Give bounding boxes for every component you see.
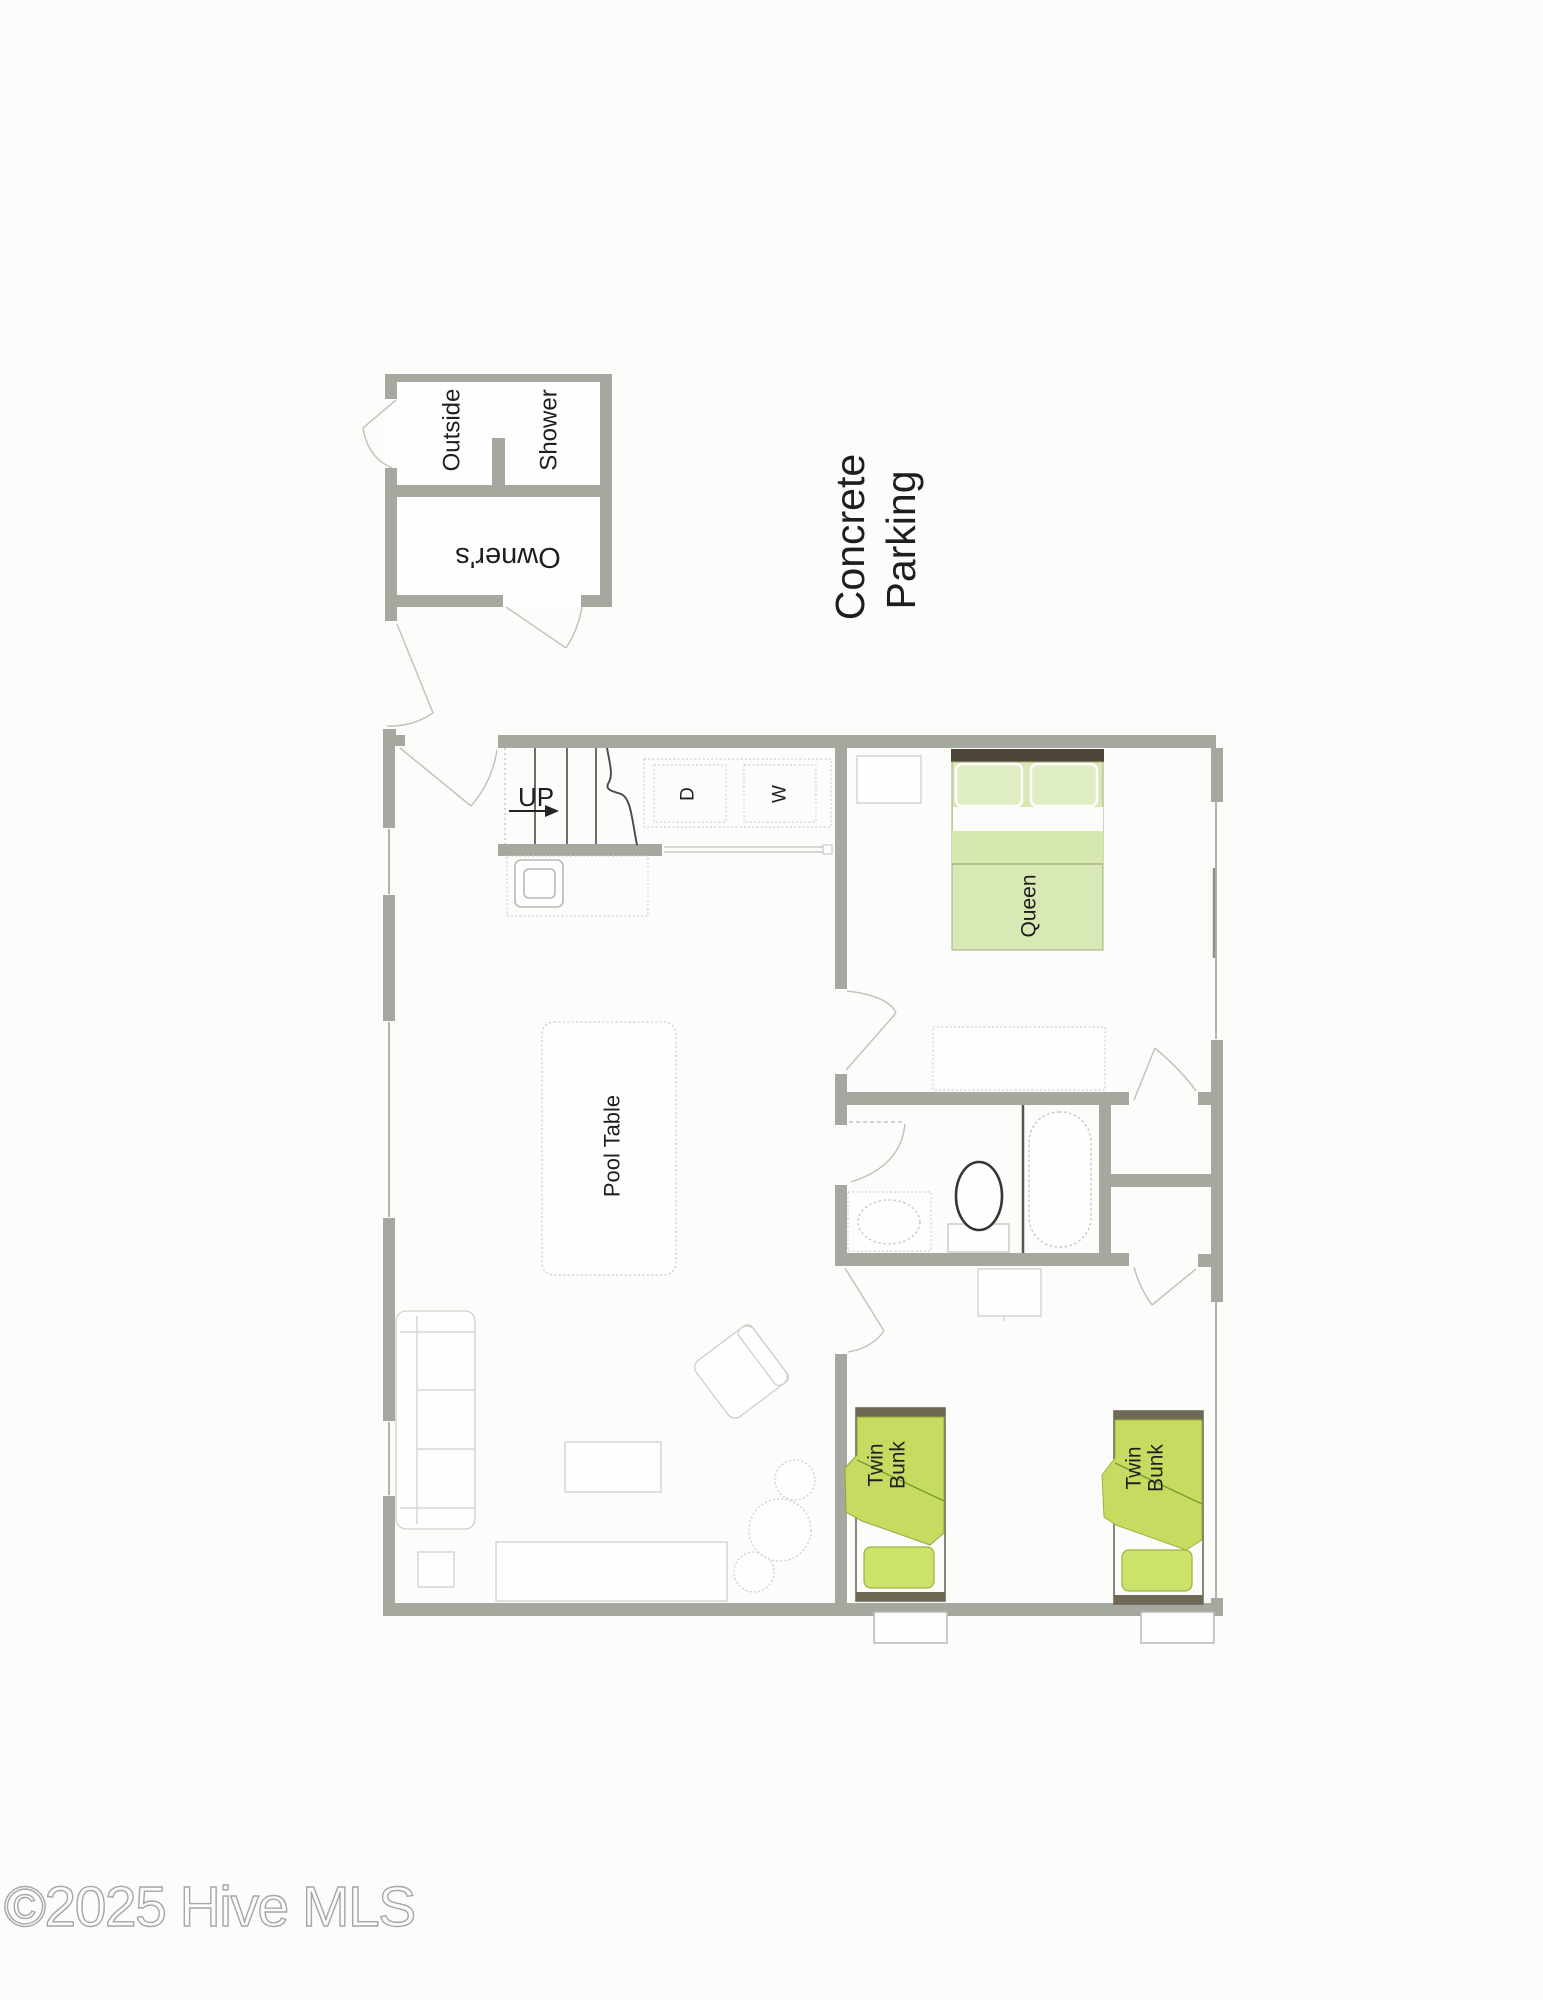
svg-text:Owner's: Owner's: [455, 541, 560, 573]
svg-text:Bunk: Bunk: [1145, 1444, 1168, 1492]
svg-text:Outside: Outside: [439, 389, 466, 472]
svg-text:Parking: Parking: [878, 470, 924, 609]
svg-text:Queen: Queen: [1018, 874, 1041, 937]
svg-text:Shower: Shower: [536, 389, 563, 470]
svg-text:D: D: [678, 787, 699, 801]
svg-text:Pool Table: Pool Table: [600, 1095, 625, 1197]
svg-text:W: W: [770, 785, 791, 803]
svg-text:Concrete: Concrete: [827, 454, 873, 620]
svg-text:Twin: Twin: [865, 1443, 888, 1486]
svg-text:Twin: Twin: [1123, 1446, 1146, 1489]
svg-text:Bunk: Bunk: [887, 1441, 910, 1489]
